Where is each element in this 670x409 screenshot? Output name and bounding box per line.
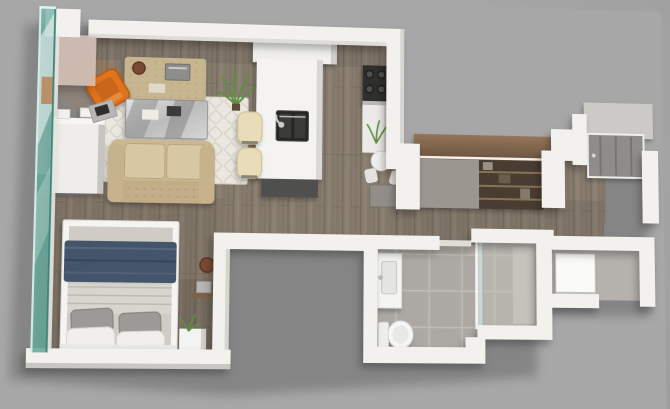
book-stack <box>165 64 190 81</box>
closet-sliding-panel <box>418 158 479 209</box>
plan-perspective-wrapper <box>0 0 667 409</box>
decor-bowl <box>133 62 146 74</box>
entry-door <box>588 134 644 178</box>
sofa-arm-right <box>199 145 215 204</box>
table-decor-box <box>167 106 181 116</box>
bath-door-threshold <box>440 240 472 246</box>
wall-closet-stub-left <box>396 143 420 209</box>
table-decor-book <box>142 109 159 119</box>
laundry <box>556 254 595 300</box>
wall-bedroom-top <box>214 232 368 251</box>
wall-bath-left <box>363 243 378 363</box>
duvet <box>64 240 177 283</box>
floorplan-render <box>0 0 670 409</box>
wall-entry-stub-b <box>551 129 582 161</box>
wardrobe-closet <box>414 134 561 210</box>
floor-bowl <box>200 258 215 273</box>
toilet <box>378 321 413 349</box>
glass-reflection-orange <box>41 77 53 105</box>
wall-outer-east <box>642 151 659 224</box>
range-cooktop <box>362 65 388 105</box>
bed <box>60 220 180 359</box>
shower-bench <box>513 247 535 324</box>
wall-laundry-right <box>639 237 655 307</box>
sofa <box>107 139 215 204</box>
wall-laundry-top <box>542 236 653 252</box>
wall-shower-right <box>536 236 552 340</box>
paper <box>149 83 166 92</box>
coffee-table <box>125 99 208 139</box>
sofa-arm-left <box>107 143 124 202</box>
kitchen-island <box>255 58 323 197</box>
wall-bath-bottom <box>363 347 485 364</box>
speaker-left <box>57 109 70 118</box>
wall-laundry-bottom <box>546 294 599 309</box>
washer-unit <box>556 254 595 300</box>
wall-shower-bottom <box>477 325 552 340</box>
vanity <box>378 253 402 308</box>
wall-north-warm-face <box>54 35 97 86</box>
console-table <box>124 57 206 101</box>
island-sink <box>276 111 309 142</box>
shelf-box <box>197 281 212 292</box>
kitchen-counter <box>362 105 390 153</box>
